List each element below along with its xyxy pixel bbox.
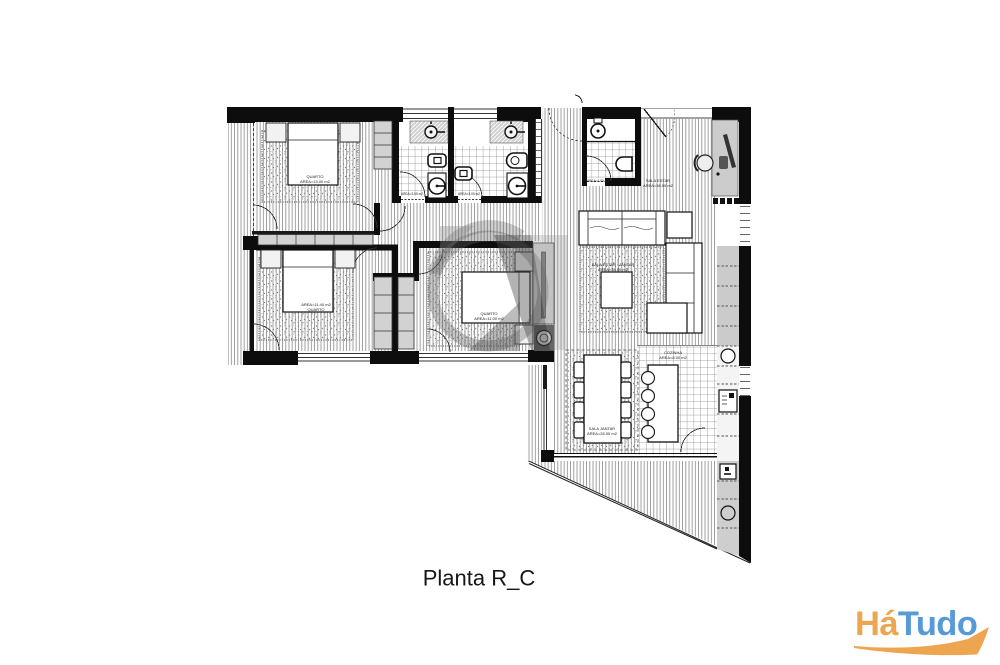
svg-text:AREA=38.00 m2: AREA=38.00 m2 — [598, 267, 629, 272]
svg-text:Planta R_C: Planta R_C — [423, 566, 536, 591]
svg-text:AREA=26.00 m2: AREA=26.00 m2 — [587, 431, 618, 436]
svg-text:AREA=3.05 m2: AREA=3.05 m2 — [458, 192, 480, 196]
svg-text:AREA=3.05 m2: AREA=3.05 m2 — [401, 192, 423, 196]
svg-text:AREA=8.00 m2: AREA=8.00 m2 — [659, 355, 687, 360]
svg-text:AREA=13.00 m2: AREA=13.00 m2 — [300, 179, 331, 184]
svg-text:AREA=2.00 m2: AREA=2.00 m2 — [587, 179, 609, 183]
svg-text:AREA=38.00 m2: AREA=38.00 m2 — [643, 183, 674, 188]
svg-text:HáTudo: HáTudo — [855, 605, 977, 643]
svg-text:AREA=11.00 m2: AREA=11.00 m2 — [474, 316, 504, 321]
svg-text:QUARTO: QUARTO — [308, 307, 325, 312]
